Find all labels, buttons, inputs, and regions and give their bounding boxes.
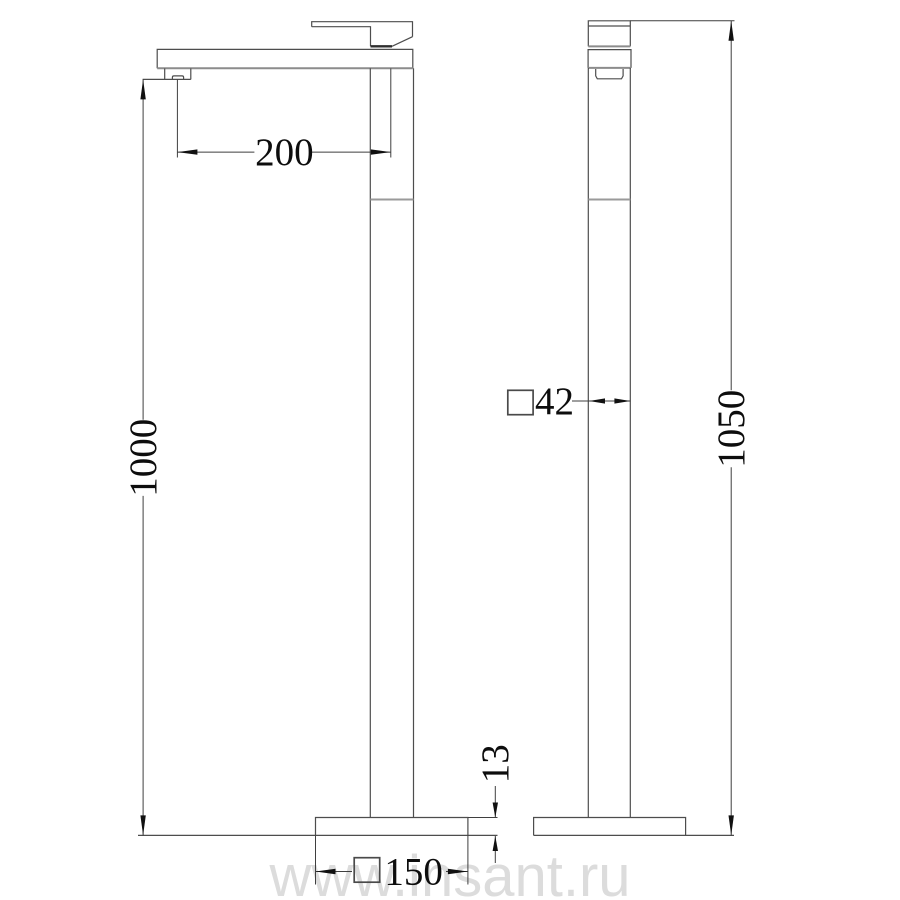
svg-text:42: 42 — [535, 380, 574, 423]
svg-text:200: 200 — [255, 131, 314, 174]
svg-text:1050: 1050 — [710, 390, 753, 468]
svg-text:13: 13 — [474, 744, 517, 783]
svg-text:1000: 1000 — [122, 419, 165, 497]
svg-text:150: 150 — [384, 851, 443, 894]
